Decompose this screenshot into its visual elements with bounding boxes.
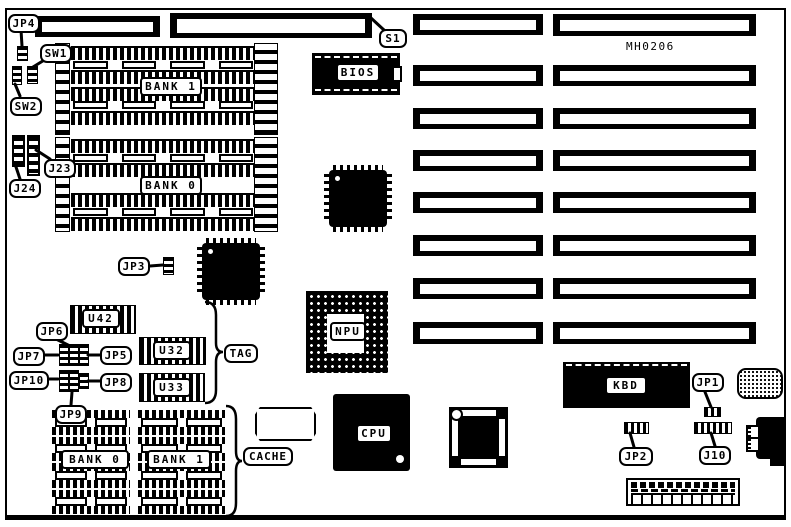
din-step [770, 459, 784, 466]
jumper-block [59, 370, 69, 392]
isa-slot-short [413, 65, 543, 86]
jp1-jumper [704, 407, 721, 417]
cache-bank0-label: BANK 0 [61, 450, 129, 469]
sw2-switch [12, 66, 22, 85]
isa-slot-short [413, 322, 543, 344]
npu-label: NPU [330, 322, 366, 341]
memory-bank1-label: BANK 1 [140, 77, 202, 96]
plcc-chip [449, 407, 508, 468]
s1-callout: S1 [379, 29, 407, 48]
jp3-jumper [163, 257, 174, 275]
jp1-callout: JP1 [692, 373, 724, 392]
jp5-callout: JP5 [100, 346, 132, 365]
keyboard-connector-pad [737, 368, 783, 399]
jp10-callout: JP10 [9, 371, 49, 390]
top-slot-2 [170, 13, 372, 38]
isa-slot-long [553, 322, 756, 344]
board-model-text: MH0206 [626, 40, 675, 53]
jumper-block [79, 373, 89, 389]
qfp-chip-1 [197, 238, 265, 305]
isa-slot-short [413, 278, 543, 299]
sw1-callout: SW1 [40, 44, 72, 63]
sw2-callout: SW2 [10, 97, 42, 116]
jp6-callout: JP6 [36, 322, 68, 341]
jumper-block [79, 344, 89, 366]
isa-slot-short [413, 108, 543, 129]
top-slot-1 [35, 16, 160, 37]
jp2-callout: JP2 [619, 447, 653, 466]
isa-slot-long [553, 65, 756, 86]
j24-callout: J24 [9, 179, 41, 198]
isa-slot-long [553, 192, 756, 213]
sw1-switch [27, 66, 38, 84]
tag-brace [203, 300, 225, 409]
j23-callout: J23 [44, 159, 76, 178]
jp9-callout: JP9 [55, 405, 87, 424]
isa-slot-short [413, 150, 543, 171]
isa-slot-short [413, 192, 543, 213]
u32-label: U32 [153, 341, 191, 360]
cache-bank1-label: BANK 1 [147, 450, 211, 469]
kbd-label: KBD [605, 376, 647, 395]
cpu-label: CPU [356, 424, 392, 443]
jp3-callout: JP3 [118, 257, 150, 276]
j10-jumper [694, 422, 732, 434]
jumper-block [59, 344, 69, 366]
isa-slot-long [553, 278, 756, 299]
memory-bank0-label: BANK 0 [140, 176, 202, 195]
j23-header [27, 135, 40, 176]
jumper-block [69, 370, 79, 392]
isa-slot-short [413, 14, 543, 35]
jp7-callout: JP7 [13, 347, 45, 366]
jp8-callout: JP8 [100, 373, 132, 392]
jp2-jumper [624, 422, 649, 434]
u42-label: U42 [82, 309, 120, 328]
motherboard-diagram: S1 MH0206 JP4 SW1 SW2 J23 J24 BANK 1 [0, 0, 791, 527]
cache-brace [224, 404, 244, 522]
jp4-jumper [17, 46, 28, 61]
power-connector [626, 478, 740, 506]
tag-callout: TAG [224, 344, 258, 363]
cache-callout: CACHE [243, 447, 293, 466]
isa-slot-long [553, 150, 756, 171]
jumper-block [69, 344, 79, 366]
j10-callout: J10 [699, 446, 731, 465]
isa-slot-long [553, 235, 756, 256]
isa-slot-short [413, 235, 543, 256]
j24-header [12, 135, 25, 167]
keyboard-din-connector [756, 417, 786, 459]
jp4-callout: JP4 [8, 14, 40, 33]
bios-label: BIOS [336, 63, 380, 82]
isa-slot-long [553, 108, 756, 129]
isa-slot-long [553, 14, 756, 36]
qfp-chip-2 [324, 165, 392, 232]
u33-label: U33 [153, 378, 191, 397]
edge-pin-connector [746, 437, 760, 452]
oscillator [255, 407, 316, 441]
